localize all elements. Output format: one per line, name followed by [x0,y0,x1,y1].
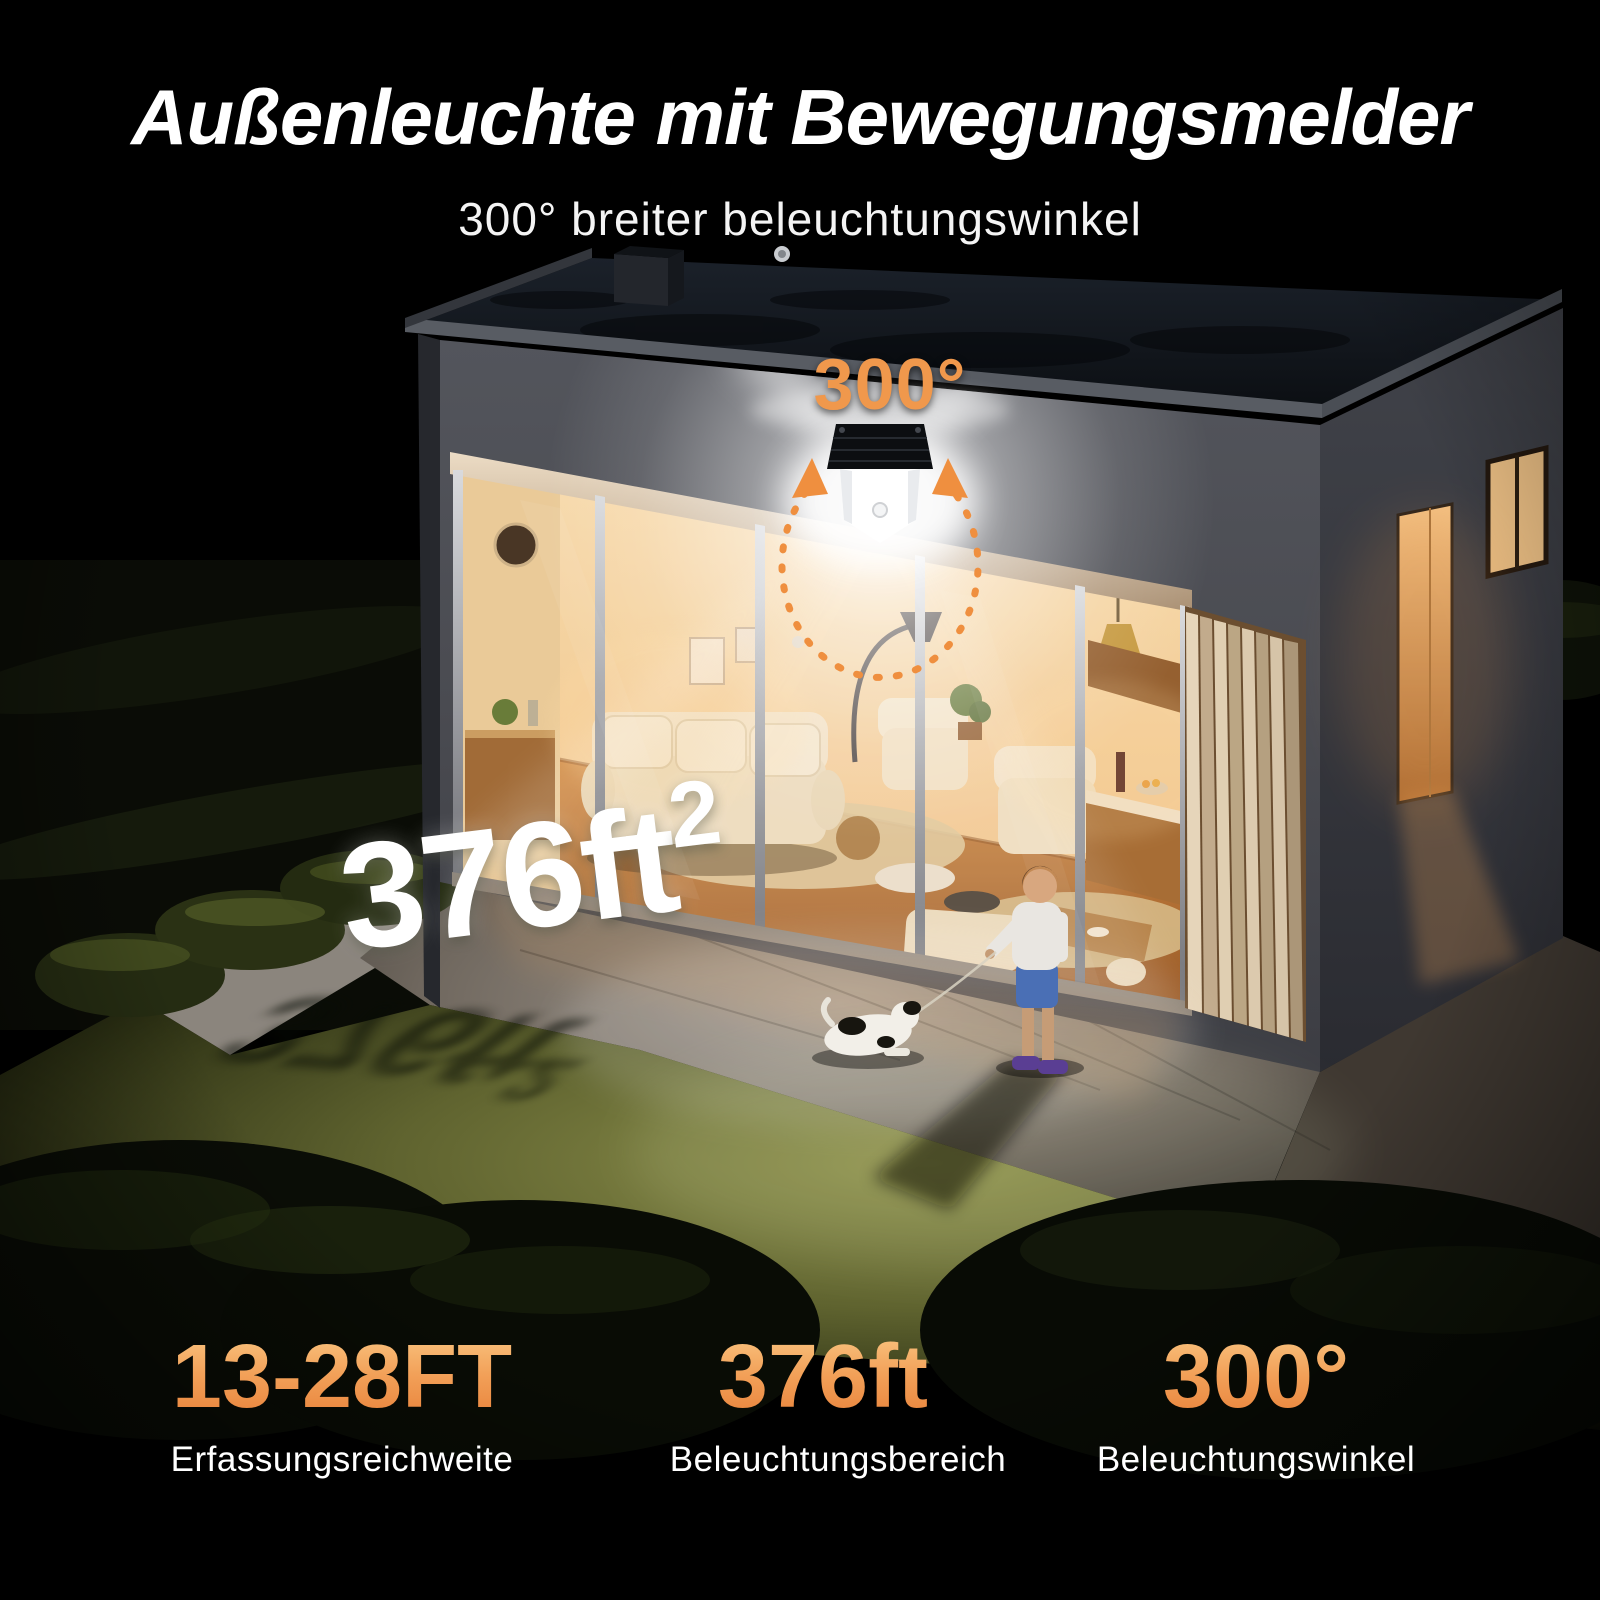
stat-detection-range: 13-28FT Erfassungsreichweite [112,1332,572,1480]
product-infographic: Außenleuchte mit Bewegungsmelder 300° br… [0,0,1600,1600]
stat-lighting-angle: 300° Beleuchtungswinkel [1026,1332,1486,1480]
stat-value: 13-28FT [172,1332,512,1422]
stat-label: Beleuchtungswinkel [1026,1440,1486,1480]
angle-callout: 300° [760,344,1020,426]
stat-value: 376ft2 [718,1332,958,1422]
stat-lighting-area: 376ft2 Beleuchtungsbereich [608,1332,1068,1480]
headline: Außenleuchte mit Bewegungsmelder [0,72,1600,163]
stat-label: Erfassungsreichweite [112,1440,572,1480]
stat-value: 300° [1163,1332,1349,1422]
subheadline: 300° breiter beleuchtungswinkel [0,192,1600,246]
stat-label: Beleuchtungsbereich [608,1440,1068,1480]
